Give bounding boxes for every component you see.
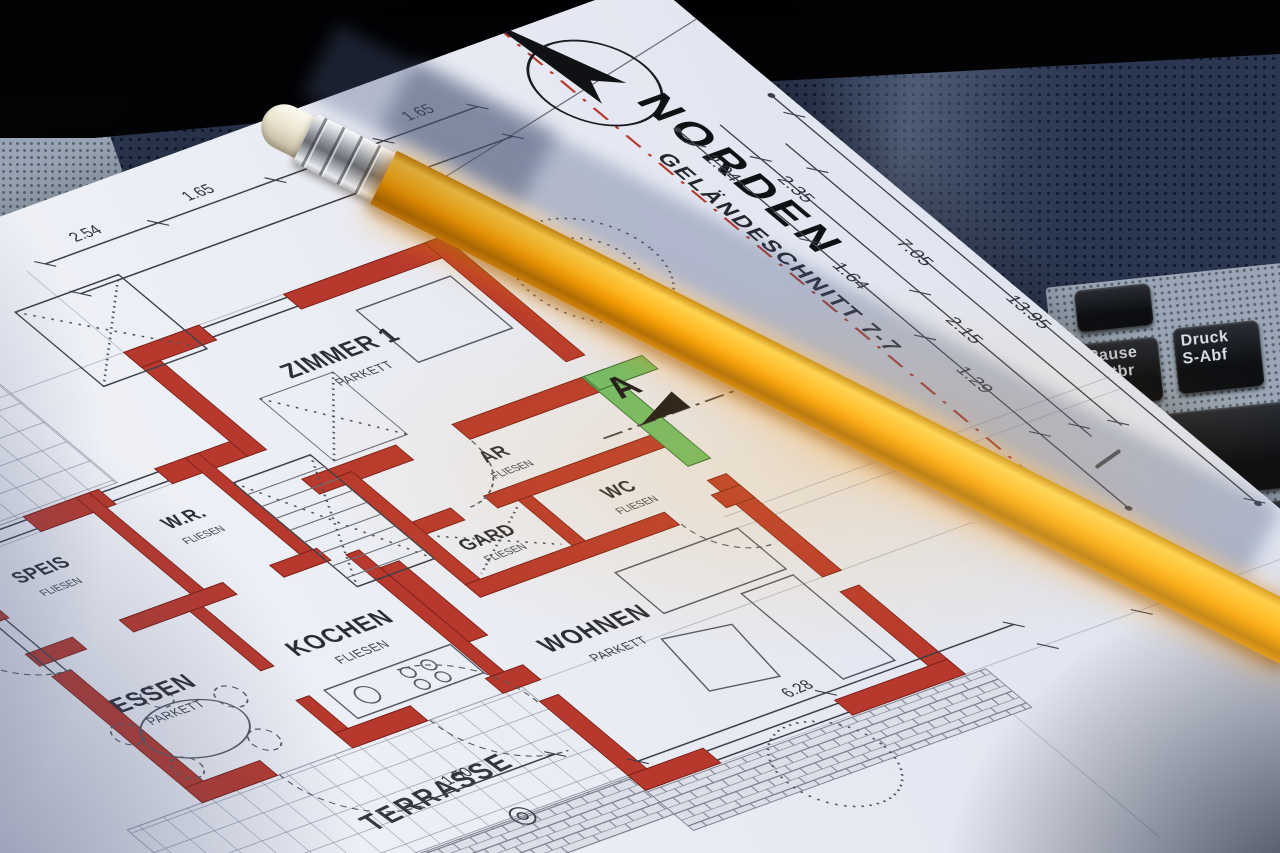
chair — [241, 726, 288, 754]
stove-burner — [411, 678, 433, 691]
wall-segment — [190, 607, 274, 671]
keyboard-key-druck: Druck S-Abf — [1172, 320, 1264, 395]
stove-burner — [397, 666, 419, 679]
wall-segment — [0, 551, 9, 625]
wall-segment — [518, 496, 586, 547]
dim-value: 1.65 — [177, 182, 219, 204]
chair — [207, 682, 254, 710]
dim-value: 6.28 — [777, 677, 819, 700]
room-label-ar: AR — [473, 442, 516, 466]
wall-segment — [296, 696, 348, 733]
shaft-annex — [15, 275, 207, 387]
coffee-table — [662, 624, 780, 691]
zimmer-closet — [260, 372, 408, 461]
sink — [349, 684, 385, 706]
photo-scene: Pause Untbr Druck S-Abf + — [0, 0, 1280, 853]
stove-burner — [432, 670, 454, 683]
sofa — [741, 575, 894, 679]
sofa — [615, 528, 786, 613]
dim-value: 2.54 — [64, 223, 106, 245]
dim-value: 7.05 — [891, 237, 939, 268]
keyboard-key-partial — [1074, 283, 1154, 333]
wall-segment — [124, 325, 217, 367]
